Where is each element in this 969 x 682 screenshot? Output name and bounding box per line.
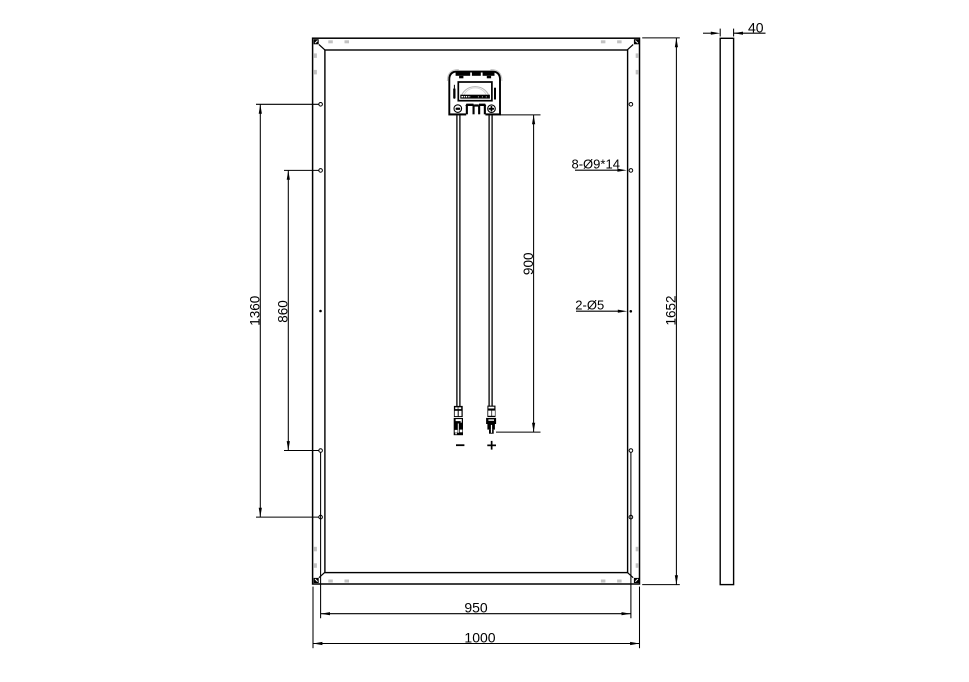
svg-text:1652: 1652 (664, 295, 679, 325)
svg-text:1360: 1360 (248, 296, 263, 326)
svg-text:8-Ø9*14: 8-Ø9*14 (572, 156, 620, 171)
svg-text:40: 40 (748, 20, 764, 36)
svg-text:2-Ø5: 2-Ø5 (575, 297, 604, 312)
svg-text:1000: 1000 (464, 630, 495, 646)
svg-text:950: 950 (464, 600, 488, 616)
svg-text:900: 900 (521, 253, 536, 276)
svg-text:860: 860 (276, 300, 291, 323)
